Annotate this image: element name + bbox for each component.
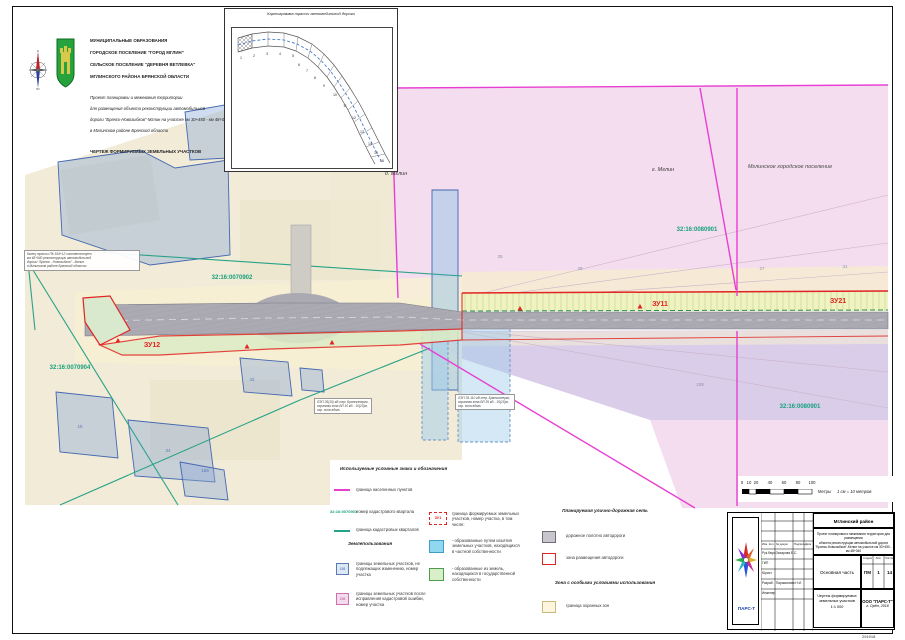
legend-title: Используемые условные знаки и обозначени… (340, 466, 510, 471)
sig-name: Захарова Е.С. (776, 551, 797, 555)
legend-label: граница населенных пунктов (356, 487, 426, 492)
inset-km-number: 7 (306, 69, 308, 73)
sig-role: Разраб. (762, 581, 773, 585)
map-label: г. Мглин (652, 167, 674, 173)
inset-km-number: 13 (360, 130, 364, 134)
inset-km-number: 12 (352, 116, 356, 120)
state-land-swatch (429, 568, 444, 581)
legend-label: граница формируемых земельных участков, … (452, 511, 520, 527)
map-label: 15 (77, 424, 83, 429)
inset-route-drawing: 12345678910111213141516 (231, 27, 393, 169)
coat-of-arms-icon (56, 38, 75, 88)
legend-label: границы земельных участков после исправл… (356, 591, 428, 607)
power-line-note-left: ЛЭП 35(10) кВ тер. Брянскэнерго, охранна… (314, 398, 372, 414)
map-label: 27 (759, 266, 765, 271)
inset-title: Картограмма трассы автомобильной дороги (225, 11, 397, 16)
logo-box: ПАРС-Т (732, 517, 759, 625)
parcel-unchanged-swatch: 158 (336, 563, 349, 575)
stamp-sheet-title: Чертеж формируемых земельных участков 1:… (813, 589, 861, 628)
map-label: Мглинское городское поселение (748, 164, 832, 170)
map-label: 42 (249, 377, 255, 382)
sig-role: Рук.бюро (762, 551, 776, 555)
scale-bar: 0 10 20 40 60 80 100 Метры 1 см = 10 мет… (738, 476, 898, 502)
signature-table: Изм. Кол. № докум. Подпись Дата Рук.бюро… (761, 513, 813, 631)
inset-km-number: 4 (279, 52, 281, 56)
sheet-corner-number: 291918 (862, 634, 875, 639)
legend-label: граница кадастровых кварталов (356, 527, 426, 532)
sig-name: Парамонова Н.И. (776, 581, 802, 585)
scale-note: 1 см = 10 метров (837, 489, 872, 494)
map-label: 31 (842, 264, 848, 269)
sig-header-cell: Дата (805, 542, 811, 546)
inset-km-number: 1 (240, 56, 242, 60)
stamp-section: Основная часть (813, 555, 861, 589)
inset-km-number: 3 (266, 52, 268, 56)
stamp-district: Мглинский район (813, 513, 894, 528)
inset-km-numbers: 12345678910111213141516 (240, 52, 384, 163)
sig-role: ГИП (762, 561, 768, 565)
scale-tick: 10 (747, 480, 752, 485)
map-label: 32:16:0070902 (212, 275, 253, 281)
map-label: 108 (696, 382, 704, 387)
private-withdrawal-swatch (429, 540, 444, 553)
sig-header-cell: Изм. Кол. (762, 542, 774, 546)
scale-tick: 80 (796, 480, 801, 485)
inset-km-number: 9 (323, 84, 325, 88)
inset-route-map: Картограмма трассы автомобильной дороги … (224, 8, 398, 172)
road-zone-swatch (542, 553, 556, 565)
legend-label: - образованные из земель, находящихся в … (452, 566, 520, 582)
cadastral-number-swatch: 32:16:0070901 (330, 509, 357, 514)
map-label: 32:16:0080901 (677, 227, 718, 233)
stamp-org: ООО "ПАРС-Т" г. Орёл, 2016 (861, 589, 894, 628)
map-label: 32:16:0080901 (780, 404, 821, 410)
legend-label: зона размещения автодороги (566, 555, 666, 560)
legend-label: - образованные путем изъятия земельных у… (452, 538, 520, 554)
stamp-project: Проект планировки и межевания территории… (813, 528, 894, 555)
parcel-corrected-swatch: 158 (336, 593, 349, 605)
settlement-boundary-swatch (334, 489, 350, 491)
scale-tick: 20 (754, 480, 759, 485)
legend-label: номер кадастрового квартала (356, 509, 426, 514)
map-label: 34 (165, 448, 171, 453)
map-label: 25 (497, 254, 503, 259)
map-label: ЗУ11 (652, 301, 668, 308)
scale-tick: 100 (809, 480, 816, 485)
scale-tick: 60 (782, 480, 787, 485)
inset-km-number: 10 (333, 93, 337, 97)
compass-south-label: Ю (36, 87, 39, 90)
scale-units: Метры (818, 489, 831, 494)
legend-label: дорожное полотно автодороги (566, 533, 666, 538)
map-label: 28 (577, 266, 583, 271)
road-surface-swatch (542, 531, 556, 543)
inset-km-number: 6 (298, 63, 300, 67)
legend-special-zone-header: Зона с особыми условиями использования (540, 580, 670, 585)
scale-tick: 0 (741, 480, 743, 485)
stamp-stage-table: Стадия Лист Листов ПМ 1 14 (861, 555, 894, 589)
pars-t-logo-icon (735, 542, 757, 578)
protection-zone-swatch (542, 601, 556, 613)
scale-tick: 40 (768, 480, 773, 485)
inset-km-number: 15 (374, 151, 378, 155)
legend-subheader: Землепользования (348, 541, 438, 546)
legend-label: границы земельных участков, не подлежащи… (356, 561, 428, 577)
logo-text: ПАРС-Т (733, 606, 760, 611)
cadastral-boundary-swatch (334, 530, 350, 532)
inset-km-number: 2 (253, 54, 255, 58)
inset-km-number: 16 (380, 159, 384, 163)
compass-north-label: С (37, 50, 40, 53)
map-label: ЗУ21 (830, 298, 846, 305)
map-label: 32:16:0070904 (50, 365, 91, 371)
compass-rose-icon: С Ю (27, 50, 49, 90)
title-block: ПАРС-Т Изм. Кол. № докум. Подпись Дата Р… (727, 512, 895, 630)
sig-header-cell: № докум. (776, 542, 788, 546)
sig-role: Инженер (762, 591, 775, 595)
legend-label: граница охранных зон (566, 603, 666, 608)
sig-header-cell: Подпись (794, 542, 805, 546)
inset-km-number: 11 (343, 104, 347, 108)
sig-role: Юрист (762, 571, 772, 575)
inset-route-centerline (238, 39, 383, 164)
legend-road-network-header: Планируемая улично-дорожная сеть (545, 508, 665, 513)
cadastral-drawing-sheet: { "sheet": { "corner_number": "291918" }… (0, 0, 905, 640)
inset-km-number: 5 (292, 54, 294, 58)
inset-km-number: 14 (368, 142, 372, 146)
map-label: ЗУ12 (144, 342, 160, 349)
route-end-note: Конец трассы ПК 184+12 соответствует км … (24, 250, 140, 271)
map-label: 158 (201, 468, 209, 473)
inset-km-number: 8 (314, 76, 316, 80)
scale-bar-segments (742, 489, 813, 495)
formed-parcel-swatch: ЗУ1 (429, 512, 447, 525)
power-line-note-right: ЛЭП 35-110 кВ тер. Брянскэнерго, охранна… (455, 394, 515, 410)
